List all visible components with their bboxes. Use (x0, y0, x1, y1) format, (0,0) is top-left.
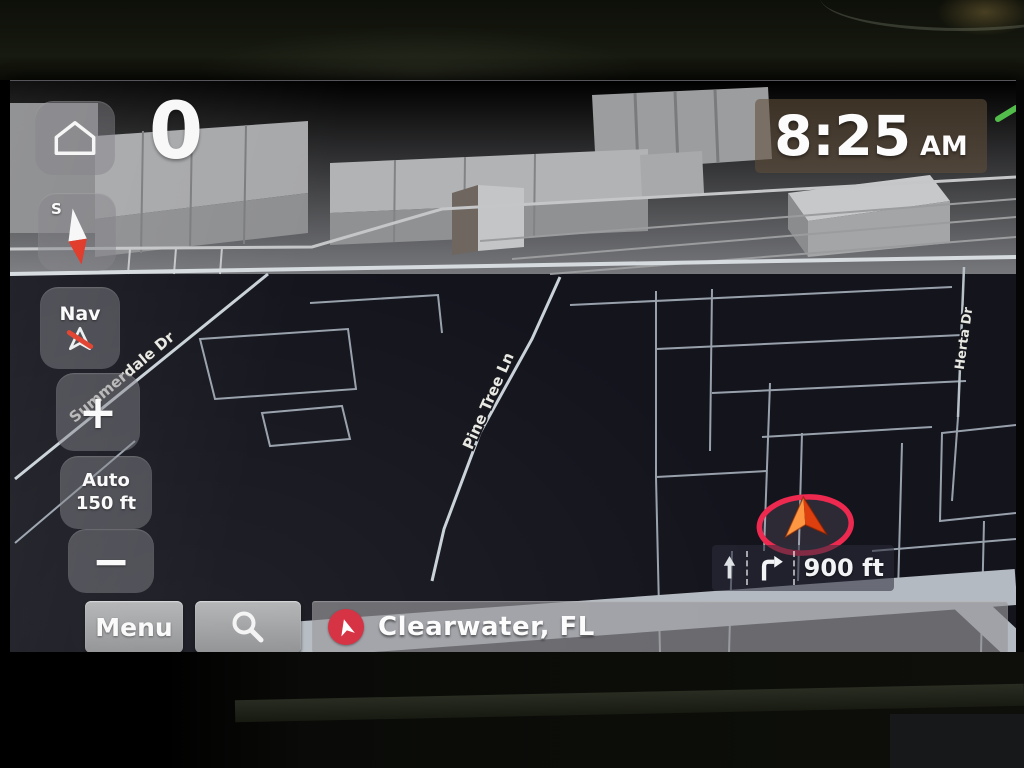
speed-value: 0 (128, 87, 224, 183)
zoom-out-button[interactable]: − (68, 529, 154, 593)
compass-button[interactable]: S (38, 193, 116, 271)
nav-button-label: Nav (59, 305, 100, 324)
dashboard-bezel-left (0, 80, 10, 652)
minus-icon: − (92, 538, 131, 584)
menu-button[interactable]: Menu (85, 601, 183, 653)
auto-scale-button[interactable]: Auto 150 ft (60, 456, 152, 529)
destination-bar[interactable]: Clearwater, FL (312, 601, 1008, 653)
lane-divider (746, 551, 748, 585)
plus-icon: + (79, 389, 118, 435)
dashboard-bezel-bottom (0, 652, 1024, 768)
location-arrow-icon (328, 609, 364, 645)
menu-button-label: Menu (95, 613, 172, 642)
zoom-in-button[interactable]: + (56, 373, 140, 451)
infotainment-screen: Summerdale Dr Pine Tree Ln Herta Dr 0 S (10, 80, 1016, 653)
map-scale-value: 150 ft (76, 493, 136, 516)
lane-straight-arrow-icon (722, 551, 737, 585)
home-icon (48, 115, 102, 161)
lane-right-turn-arrow-icon (757, 551, 784, 585)
nav-voice-button[interactable]: Nav (40, 287, 120, 369)
clock-period: AM (920, 131, 968, 162)
dashboard-bezel-right (1016, 80, 1024, 652)
maneuver-distance: 900 ft (804, 554, 884, 582)
nav-voice-mute-icon (66, 326, 94, 352)
compass-heading-label: S (51, 200, 62, 218)
lane-divider (793, 551, 795, 585)
destination-label: Clearwater, FL (378, 612, 595, 642)
home-button[interactable] (35, 101, 115, 175)
clock-time: 8:25 (774, 99, 911, 173)
dashboard-bezel-corner (890, 714, 1024, 768)
search-button[interactable] (195, 601, 301, 653)
dashboard-photo: Summerdale Dr Pine Tree Ln Herta Dr 0 S (0, 0, 1024, 768)
lane-guidance-badge: 900 ft (712, 545, 894, 591)
clock-badge: 8:25 AM (755, 99, 987, 173)
search-icon (230, 609, 266, 645)
auto-scale-mode: Auto (82, 470, 130, 493)
